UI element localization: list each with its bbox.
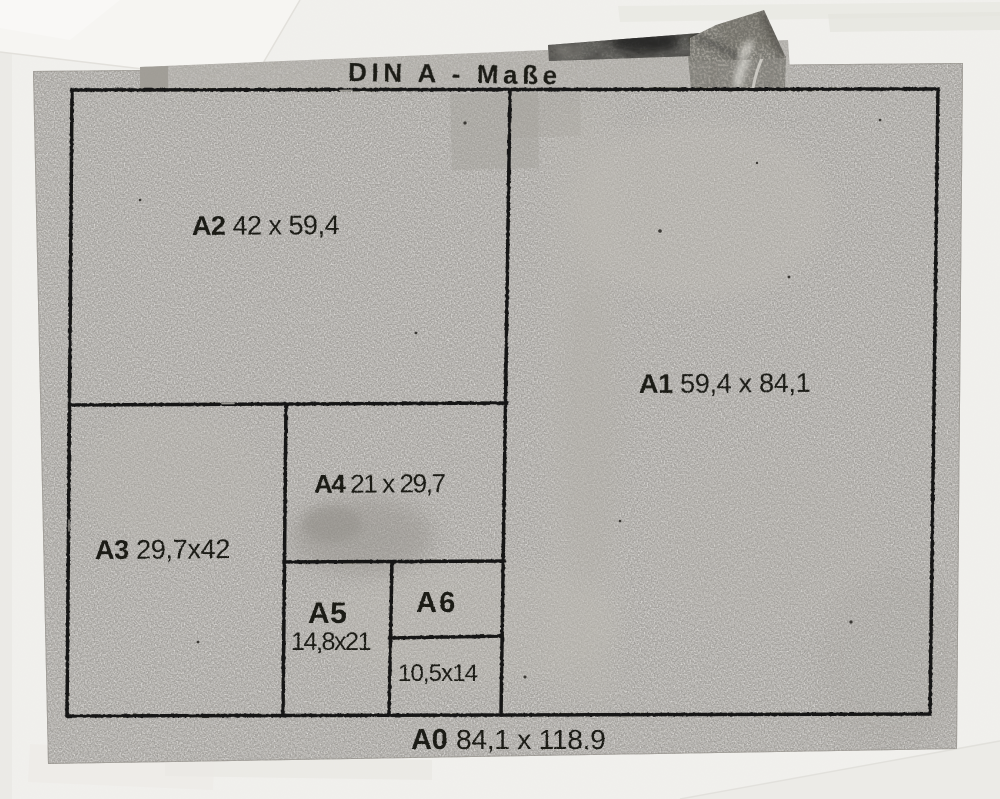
svg-text:A2 42 x 59,4: A2 42 x 59,4 [192, 210, 340, 241]
svg-text:A1 59,4 x 84,1: A1 59,4 x 84,1 [639, 368, 811, 399]
svg-text:A6: A6 [416, 587, 457, 619]
svg-text:14,8x21: 14,8x21 [291, 628, 371, 656]
svg-text:A5: A5 [308, 597, 347, 630]
svg-text:A0 84,1 x 118.9: A0 84,1 x 118.9 [411, 723, 605, 756]
svg-text:A4 21 x 29,7: A4 21 x 29,7 [314, 468, 446, 499]
svg-text:A3 29,7x42: A3 29,7x42 [95, 534, 230, 565]
svg-text:10,5x14: 10,5x14 [398, 660, 478, 687]
svg-text:DIN A - Maße: DIN A - Maße [348, 57, 562, 90]
